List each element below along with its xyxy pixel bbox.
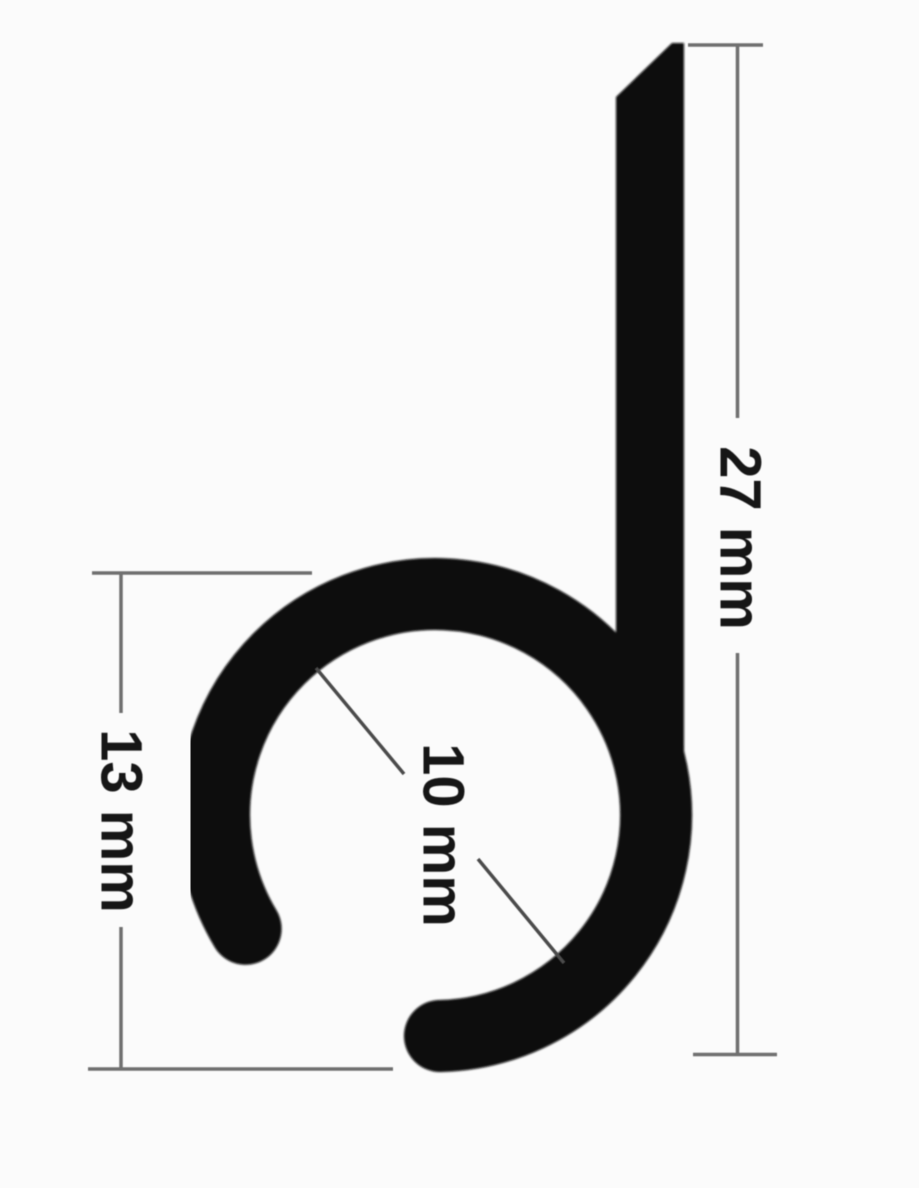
dimension-ring-outer-label: 13 mm bbox=[89, 729, 154, 913]
technical-drawing: 27 mm 13 mm 10 mm bbox=[0, 0, 919, 1188]
dimension-ring-inner-label: 10 mm bbox=[411, 743, 476, 927]
dimension-overall-height-label: 27 mm bbox=[708, 446, 773, 630]
drawing-canvas: 27 mm 13 mm 10 mm bbox=[0, 0, 919, 1188]
